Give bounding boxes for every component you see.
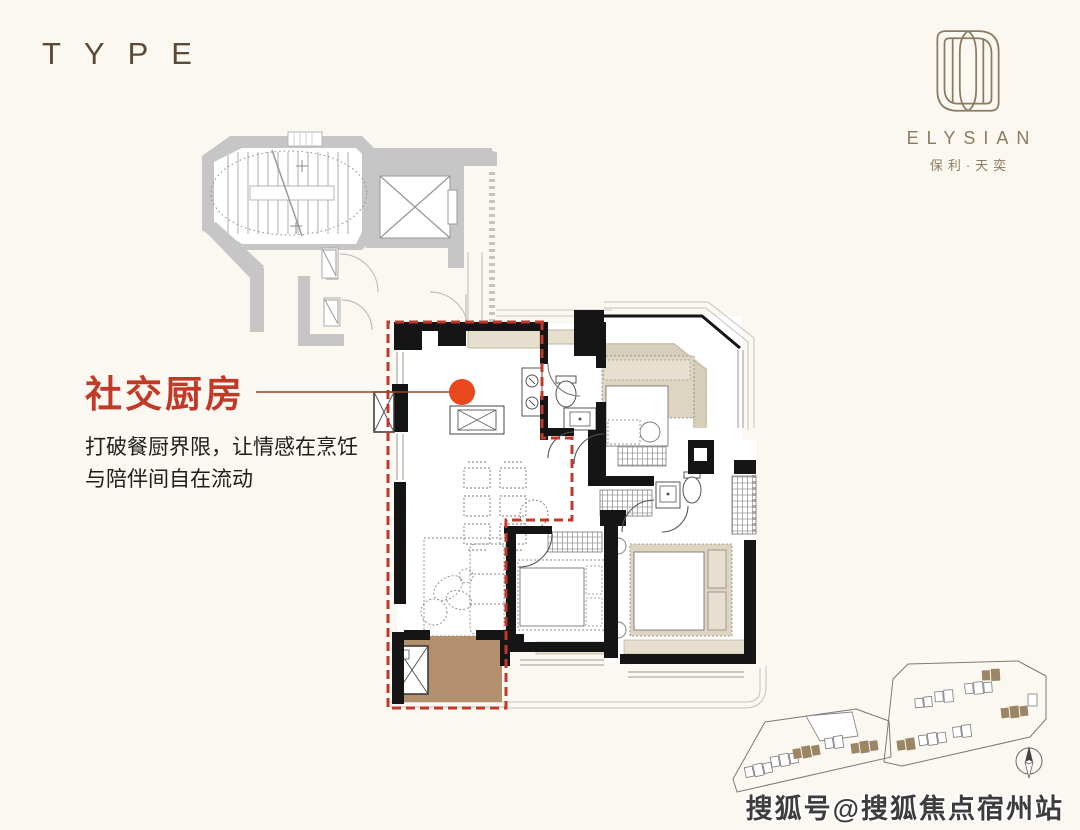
kitchen-counter [468, 330, 540, 348]
feature-description-line1: 打破餐厨界限，让情感在烹饪 [85, 432, 385, 464]
stove [522, 368, 542, 416]
wardrobe-hatch [732, 476, 756, 534]
watermark-text: 搜狐号@搜狐焦点宿州站 [746, 787, 1064, 826]
feature-callout: 社交厨房 打破餐厨界限，让情感在烹饪 与陪伴间自在流动 [85, 364, 385, 496]
feature-description-line2: 与陪伴间自在流动 [85, 464, 385, 496]
master-closet [548, 532, 602, 552]
core-stair-elevator [202, 132, 612, 346]
stair-landing [250, 186, 334, 200]
north-compass-icon [1016, 746, 1042, 778]
site-building-highlight [1000, 705, 1028, 720]
balcony [396, 636, 502, 702]
site-building-highlight [792, 744, 821, 761]
wardrobe-hatch [618, 446, 666, 466]
site-building-highlight [850, 739, 878, 755]
site-building-highlight [982, 669, 1001, 682]
site-plan [733, 661, 1046, 792]
site-buildings [744, 669, 1037, 779]
feature-title: 社交厨房 [85, 364, 385, 418]
elevator [380, 176, 457, 238]
kitchen-marker-dot [449, 379, 475, 405]
feature-description: 打破餐厨界限，让情感在烹饪 与陪伴间自在流动 [85, 432, 385, 496]
site-building-highlight [896, 737, 915, 751]
kitchen-island-sink [450, 406, 504, 434]
